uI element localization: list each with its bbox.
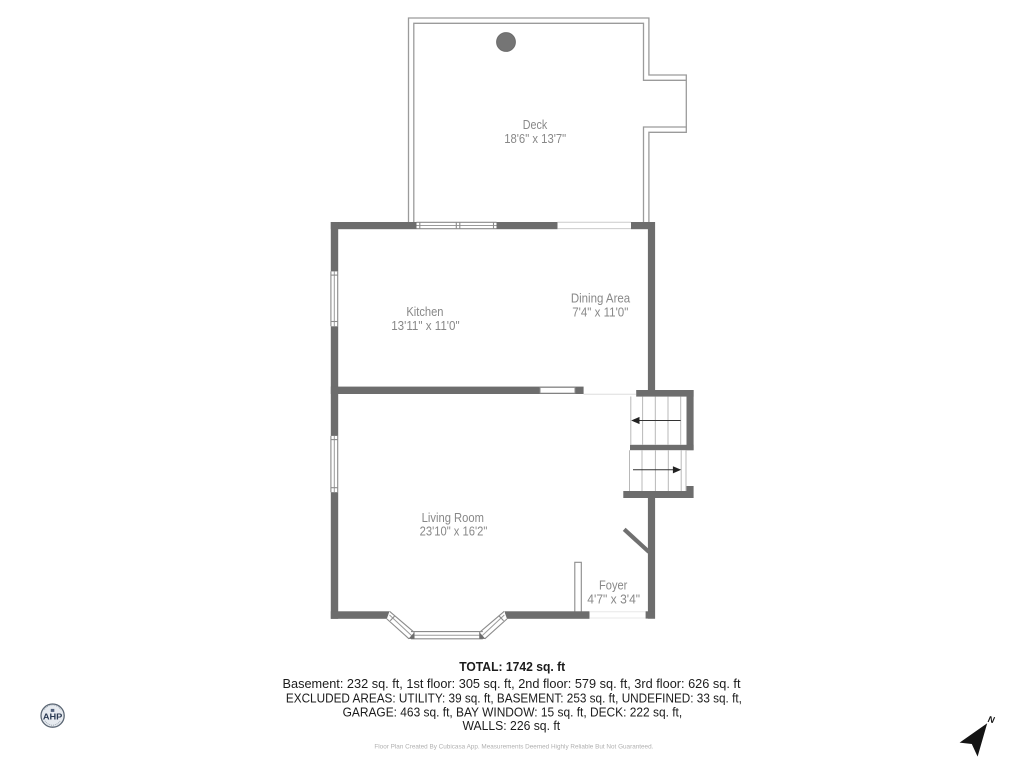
svg-text:Floor Plan Created By Cubicasa: Floor Plan Created By Cubicasa App. Meas… bbox=[374, 744, 653, 751]
svg-text:WALLS: 226 sq. ft: WALLS: 226 sq. ft bbox=[463, 718, 561, 733]
svg-text:7'4" x 11'0": 7'4" x 11'0" bbox=[572, 305, 628, 319]
svg-text:AHP: AHP bbox=[43, 712, 63, 721]
svg-text:Foyer: Foyer bbox=[599, 579, 627, 593]
svg-text:13'11" x 11'0": 13'11" x 11'0" bbox=[391, 319, 459, 333]
svg-text:EXCLUDED AREAS: UTILITY: 39 sq: EXCLUDED AREAS: UTILITY: 39 sq. ft, BASE… bbox=[286, 690, 742, 705]
svg-text:4'7" x 3'4": 4'7" x 3'4" bbox=[587, 593, 640, 607]
svg-text:Living Room: Living Room bbox=[422, 511, 484, 525]
svg-text:TOTAL: 1742 sq. ft: TOTAL: 1742 sq. ft bbox=[459, 659, 566, 674]
svg-text:Basement: 232 sq. ft, 1st floo: Basement: 232 sq. ft, 1st floor: 305 sq.… bbox=[283, 676, 741, 691]
svg-text:N: N bbox=[987, 714, 996, 725]
svg-text:Dining Area: Dining Area bbox=[571, 292, 630, 306]
svg-text:23'10" x 16'2": 23'10" x 16'2" bbox=[420, 524, 488, 538]
svg-text:18'6" x 13'7": 18'6" x 13'7" bbox=[504, 132, 566, 146]
svg-text:Deck: Deck bbox=[523, 118, 548, 132]
svg-text:Kitchen: Kitchen bbox=[406, 305, 443, 319]
